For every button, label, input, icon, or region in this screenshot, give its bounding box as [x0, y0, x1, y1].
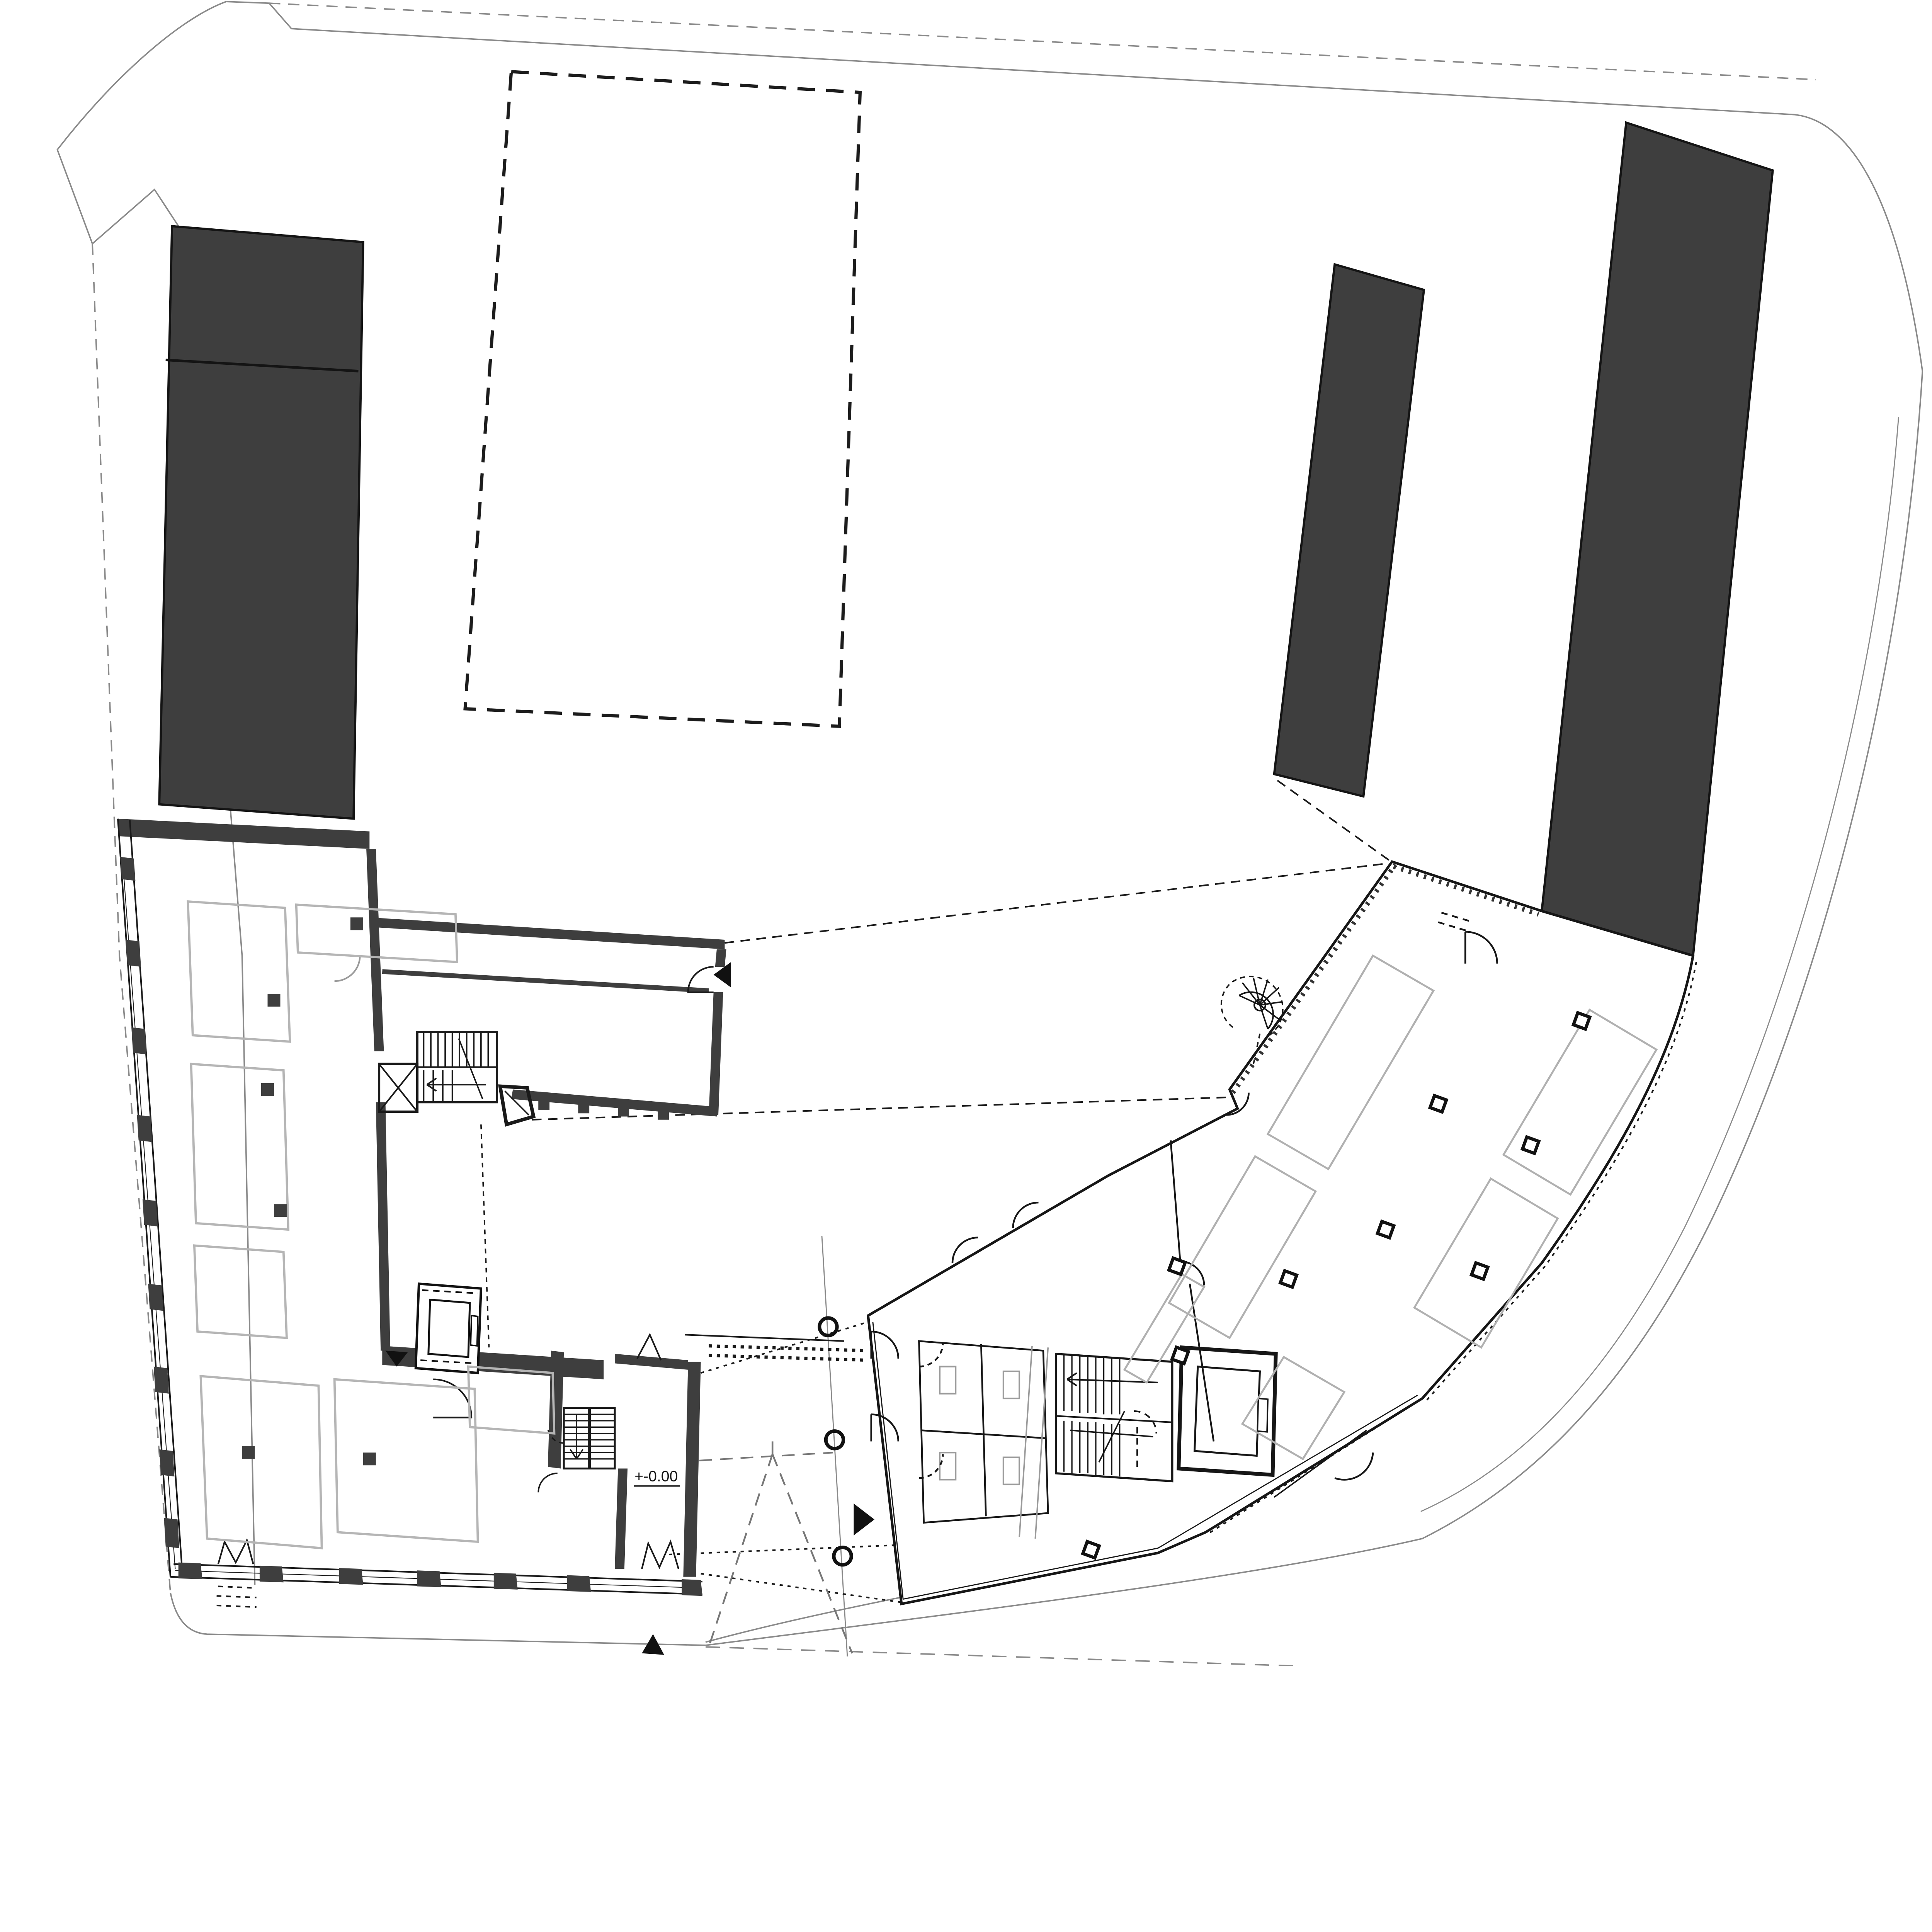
wall-top — [118, 819, 369, 849]
hall-right-wall — [683, 1362, 701, 1577]
entrance-door-west-block — [217, 1540, 257, 1607]
columns — [242, 917, 376, 1465]
annex-right-wall-upper — [715, 949, 726, 967]
bollard-circles — [820, 1318, 851, 1565]
site-plan-canvas: +-0.00 — [0, 0, 1932, 1666]
building-mass-northeast-b — [1542, 122, 1773, 956]
building-mass-northeast-a — [1274, 264, 1424, 796]
facade-west-pilasters — [120, 857, 179, 1548]
site-corner-bottom-left — [170, 1593, 706, 1645]
main-block-right-wall-2 — [376, 1102, 390, 1350]
courtyard-lift — [416, 1284, 481, 1373]
plan-sheet: +-0.00 — [0, 0, 1932, 1666]
planned-building-dashed-outline — [465, 71, 860, 726]
hall-top-wall — [615, 1354, 688, 1370]
annex-corridor-wall — [382, 971, 709, 990]
existing-building-masses — [159, 122, 1773, 956]
new-building-elevator — [1179, 1347, 1276, 1475]
ramp-dashed-triangle — [709, 1440, 852, 1653]
stair-core-1 — [379, 1032, 534, 1124]
site-corner-top-left-arc — [57, 2, 226, 244]
site-edge-bottom-dashed — [706, 1647, 1298, 1666]
hall-left-wall — [615, 1468, 628, 1569]
entrance-hall: +-0.00 — [615, 1335, 701, 1577]
lobby-door-arc — [433, 1379, 471, 1418]
canopy-link-lines — [685, 1335, 844, 1341]
new-building-entrance-marker — [854, 1503, 874, 1535]
main-block-right-wall — [366, 849, 384, 1051]
new-building-plan — [820, 862, 1693, 1604]
annex-door-arc-2 — [335, 956, 360, 981]
level-label: +-0.00 — [634, 1468, 678, 1485]
building-mass-west — [159, 226, 363, 818]
old-building-plan: +-0.00 — [118, 819, 731, 1655]
annex-top-wall — [369, 917, 724, 949]
annex-right-wall-lower — [709, 992, 723, 1115]
entrance-door-south-wing — [642, 1542, 679, 1569]
site-lotline-top-dashed — [269, 3, 1816, 80]
